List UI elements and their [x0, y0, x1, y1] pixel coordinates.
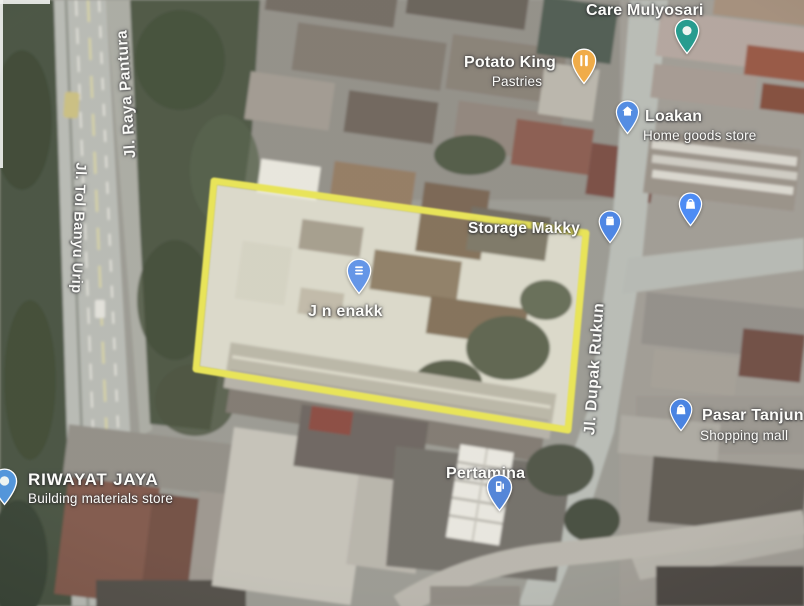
generic-place-icon	[682, 26, 691, 35]
map-pin-pasar-tanjun[interactable]	[669, 398, 693, 432]
place-sublabel-potato-king[interactable]: Pastries	[464, 74, 570, 89]
store-icon	[0, 476, 9, 485]
photo-edge-left	[0, 0, 3, 168]
place-label-pasar-tanjun[interactable]: Pasar Tanjun	[702, 407, 804, 425]
map-pin-unlabeled-place[interactable]	[678, 192, 703, 227]
map-pin-loakan[interactable]	[615, 100, 640, 135]
place-label-storage-makky[interactable]: Storage Makky	[468, 220, 580, 238]
storage-box-icon	[606, 217, 614, 226]
place-label-riwayat-jaya[interactable]: RIWAYAT JAYA	[28, 470, 159, 490]
map-pin-jn-enakk[interactable]	[346, 258, 372, 295]
map-pin-storage-makky[interactable]	[598, 210, 622, 244]
menu-lines-icon	[355, 266, 363, 274]
map-canvas[interactable]: Jl. Raya Pantura Jl. Tol Banyu Urip Jl. …	[0, 0, 804, 606]
place-sublabel-loakan[interactable]: Home goods store	[643, 128, 757, 143]
photo-edge-top	[0, 0, 50, 4]
place-sublabel-riwayat-jaya[interactable]: Building materials store	[28, 491, 173, 506]
place-sublabel-pasar-tanjun[interactable]: Shopping mall	[700, 428, 788, 443]
map-pin-pertamina[interactable]	[486, 474, 513, 512]
map-pin-care-mulyosari[interactable]	[674, 18, 700, 55]
place-label-loakan[interactable]: Loakan	[645, 108, 702, 126]
map-pin-potato-king[interactable]	[571, 48, 597, 85]
place-label-jn-enakk[interactable]: J n enakk	[308, 303, 383, 321]
place-label-potato-king[interactable]: Potato King	[464, 54, 556, 72]
map-pin-riwayat-jaya[interactable]	[0, 468, 18, 506]
